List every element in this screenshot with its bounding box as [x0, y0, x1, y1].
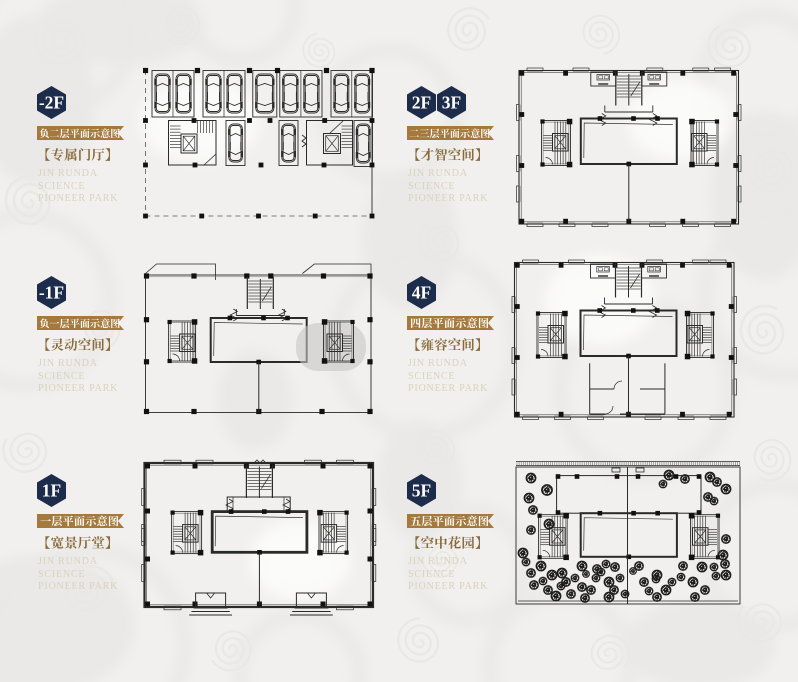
svg-text:-2F: -2F	[39, 93, 64, 113]
svg-text:1F: 1F	[42, 481, 61, 501]
svg-text:4F: 4F	[412, 283, 431, 303]
svg-text:-1F: -1F	[39, 283, 64, 303]
svg-text:5F: 5F	[412, 481, 431, 501]
svg-text:3F: 3F	[442, 93, 461, 113]
svg-text:2F: 2F	[412, 93, 431, 113]
